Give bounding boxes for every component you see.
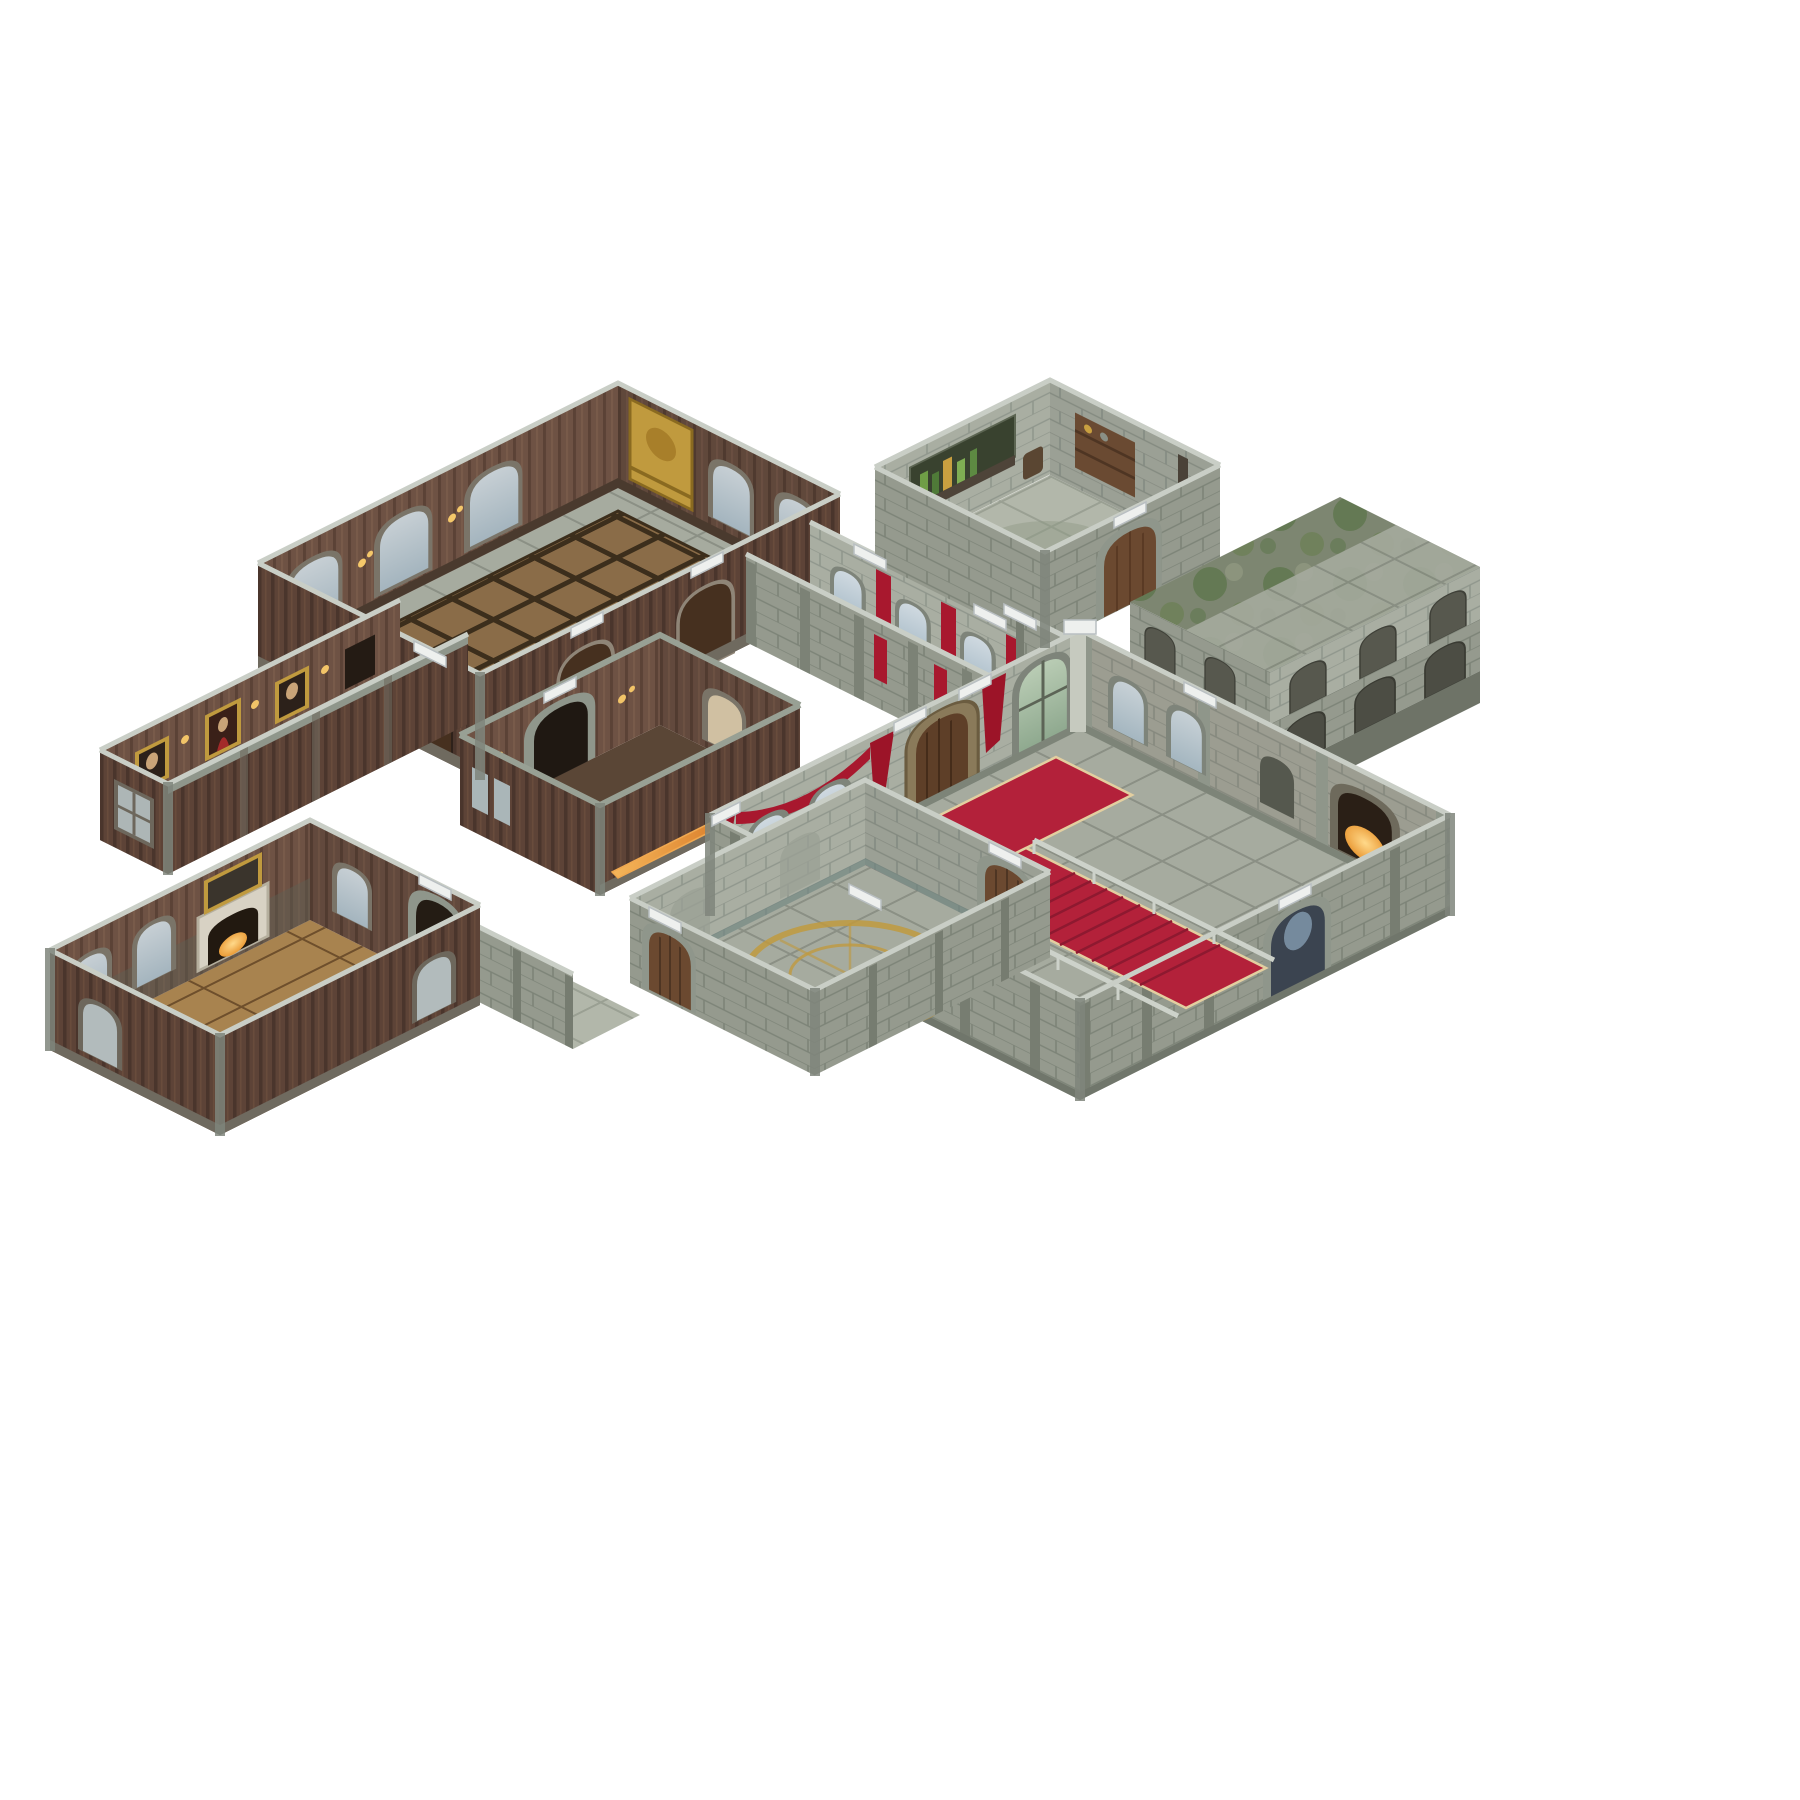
bottle-icon (970, 448, 977, 478)
corner-pilaster (1070, 632, 1086, 732)
bottle-icon (957, 458, 965, 484)
bottle-icon (943, 457, 952, 492)
red-banner (941, 602, 956, 658)
terrain-set-product-photo (0, 0, 1800, 1800)
bottle-icon (932, 471, 939, 497)
study (50, 820, 480, 1135)
terrain-scene (0, 0, 1800, 1800)
red-banner (874, 634, 887, 685)
red-banner (876, 569, 891, 625)
